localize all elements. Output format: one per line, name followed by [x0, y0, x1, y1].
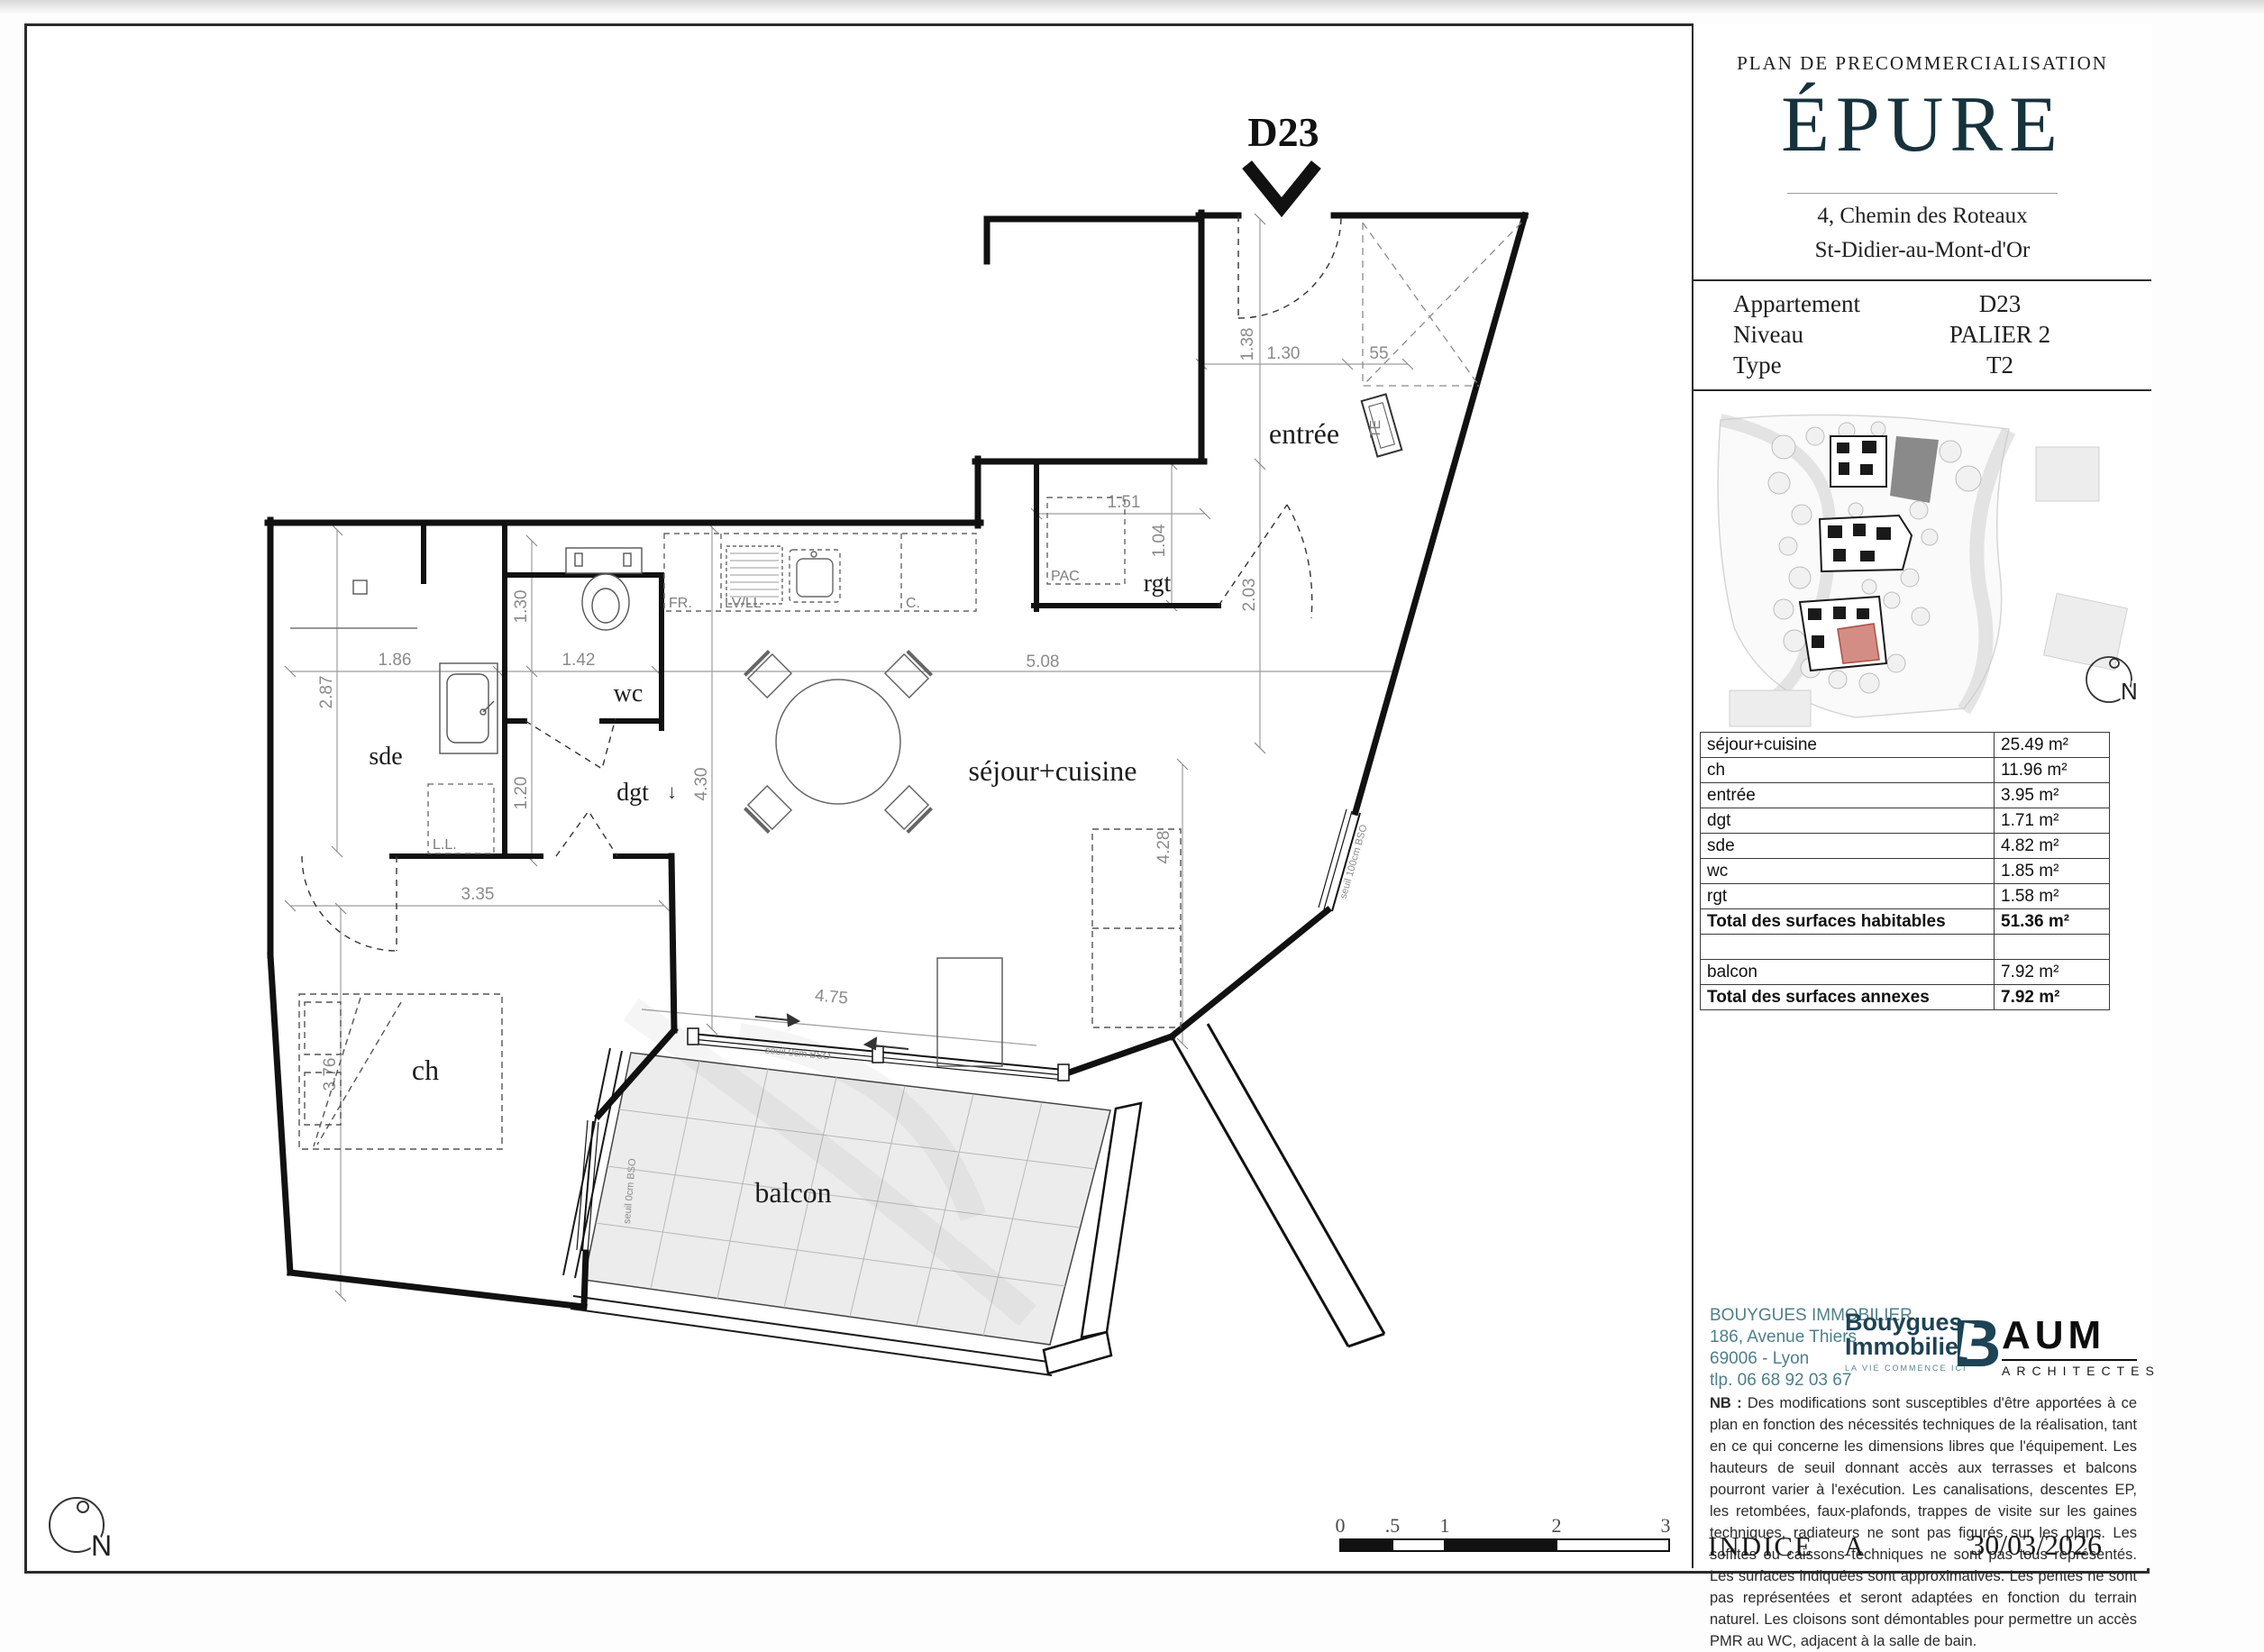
project-logo: ÉPURE [1693, 79, 2151, 170]
surface-value: 1.71 m² [1995, 808, 2110, 834]
address-line2: St-Didier-au-Mont-d'Or [1693, 238, 2151, 263]
exterior-wall-strip [1172, 1024, 1384, 1346]
dim-entree-width: 1.30 [1267, 344, 1301, 363]
aum-name: AUM [2002, 1316, 2137, 1355]
surface-value: 4.82 m² [1995, 834, 2110, 859]
surface-value: 1.85 m² [1995, 859, 2110, 884]
svg-text:0: 0 [1336, 1514, 1346, 1537]
site-plan: N [1693, 393, 2151, 728]
table-row: sde4.82 m² [1701, 834, 2110, 859]
dishwasher-label: LV/LL [725, 596, 762, 611]
indice: INDICEA [1708, 1530, 1866, 1563]
dim-rgt-width: 1.51 [1108, 493, 1141, 512]
doors [302, 215, 1341, 951]
dim-sejour-width: 5.08 [1027, 653, 1060, 671]
dim-sde-width: 1.86 [379, 651, 412, 670]
table-row-empty [1701, 935, 2110, 960]
surface-value [1995, 935, 2110, 960]
surface-value: 51.36 m² [1995, 909, 2110, 935]
fridge-label: FR. [669, 596, 692, 611]
info-label: Appartement [1733, 290, 1860, 318]
dgt-arrow: ↓ [667, 780, 677, 803]
info-value: D23 [1919, 290, 2081, 318]
table-row: ch11.96 m² [1701, 758, 2110, 783]
info-row-appartement: Appartement D23 [1693, 290, 2151, 321]
surface-label [1701, 935, 1995, 960]
address-line1: 4, Chemin des Roteaux [1693, 204, 2151, 229]
dim-sejour-depth: 4.30 [692, 768, 711, 801]
svg-text:.5: .5 [1385, 1514, 1401, 1537]
scale-bar [1340, 1539, 1669, 1551]
svg-text:1: 1 [1440, 1514, 1450, 1537]
indice-value: A [1844, 1530, 1866, 1562]
dim-entree-height: 1.38 [1238, 328, 1257, 361]
site-highlighted-unit [1838, 624, 1879, 663]
dim-entree-length: 2.03 [1240, 579, 1259, 612]
dim-wc-depth: 1.30 [512, 590, 531, 624]
bouygues-b-mark-icon: B [1953, 1310, 2005, 1375]
coffee-table [937, 958, 1002, 1066]
surfaces-table: séjour+cuisine25.49 m² ch11.96 m² entrée… [1700, 732, 2110, 1010]
wc-toilet [566, 548, 642, 630]
shower-drain [353, 580, 367, 594]
note-label: NB : [1710, 1395, 1742, 1411]
surface-label: sde [1701, 834, 1995, 859]
dim-terrace-top: 4.75 [814, 986, 849, 1008]
electrical-label: TE [1368, 420, 1383, 438]
table-row: séjour+cuisine25.49 m² [1701, 733, 2110, 758]
site-building-middle [1820, 516, 1912, 571]
room-entree: entrée [1269, 417, 1339, 450]
svg-text:2: 2 [1552, 1514, 1562, 1537]
table-row: rgt1.58 m² [1701, 884, 2110, 909]
divider [1693, 389, 2151, 391]
room-sde: sde [369, 743, 402, 771]
surface-label: ch [1701, 758, 1995, 783]
surface-label: dgt [1701, 808, 1995, 834]
table-row-total-annexes: Total des surfaces annexes7.92 m² [1701, 985, 2110, 1010]
room-ch: ch [412, 1054, 439, 1086]
surface-value: 11.96 m² [1995, 758, 2110, 783]
info-row-type: Type T2 [1693, 351, 2151, 382]
room-balcon: balcon [754, 1176, 831, 1209]
surface-value: 25.49 m² [1995, 733, 2110, 758]
surface-label: Total des surfaces annexes [1701, 985, 1995, 1010]
room-rgt: rgt [1144, 570, 1172, 598]
surface-label: wc [1701, 859, 1995, 884]
room-wc: wc [614, 680, 644, 707]
surface-label: séjour+cuisine [1701, 733, 1995, 758]
info-value: T2 [1919, 351, 2081, 379]
site-building-top [1830, 436, 1886, 487]
surface-value: 7.92 m² [1995, 985, 2110, 1010]
info-row-niveau: Niveau PALIER 2 [1693, 321, 2151, 351]
contact-line: tlp. 06 68 92 03 67 [1710, 1370, 1913, 1392]
surface-value: 3.95 m² [1995, 783, 2110, 808]
kitchen-counter [664, 534, 976, 611]
info-panel: PLAN DE PRECOMMERCIALISATION ÉPURE 4, Ch… [1692, 23, 2151, 1568]
table-row: entrée3.95 m² [1701, 783, 2110, 808]
plan-date: 30/03/2026 [1970, 1529, 2102, 1562]
table-row: dgt1.71 m² [1701, 808, 2110, 834]
scale-labels: 0 .5 1 2 3 [1336, 1514, 1671, 1537]
dim-sejour-side: 4.28 [1155, 831, 1173, 864]
unit-label: D23 [1247, 109, 1319, 155]
surface-label: Total des surfaces habitables [1701, 909, 1995, 935]
surface-value: 7.92 m² [1995, 960, 2110, 985]
info-label: Niveau [1733, 321, 1803, 349]
info-label: Type [1733, 351, 1782, 379]
room-dgt: dgt [616, 779, 649, 807]
aum-logo: AUM ARCHITECTES [2002, 1316, 2137, 1378]
svg-text:B: B [1953, 1310, 2001, 1375]
dim-ch-width: 3.35 [461, 885, 495, 904]
note-text: Des modifications sont susceptibles d'êt… [1710, 1395, 2137, 1649]
dining-table [744, 651, 931, 832]
pac-label: PAC [1051, 569, 1080, 584]
balcony-side-wall-return [1044, 1332, 1111, 1374]
surface-label: rgt [1701, 884, 1995, 909]
table-row: balcon7.92 m² [1701, 960, 2110, 985]
north-label: N [91, 1529, 112, 1562]
dim-wc-width: 1.42 [562, 651, 596, 670]
dim-sde-depth: 2.87 [317, 676, 336, 709]
surface-label: balcon [1701, 960, 1995, 985]
dim-dgt-depth: 1.20 [512, 777, 531, 810]
indice-label: INDICE [1708, 1530, 1813, 1562]
cooker-label: C. [906, 596, 920, 611]
plan-type-title: PLAN DE PRECOMMERCIALISATION [1693, 52, 2151, 75]
entrance-arrow-icon [1251, 169, 1312, 207]
disclaimer-note: NB : Des modifications sont susceptibles… [1710, 1392, 2137, 1652]
room-sejour: séjour+cuisine [969, 754, 1137, 787]
surface-label: entrée [1701, 783, 1995, 808]
sde-basin [440, 663, 498, 753]
dim-shaft-width: 55 [1369, 344, 1388, 363]
aum-subtitle: ARCHITECTES [2002, 1359, 2137, 1378]
dim-rgt-depth: 1.04 [1150, 524, 1169, 557]
info-value: PALIER 2 [1919, 321, 2081, 349]
divider [1693, 279, 2151, 281]
brand-rule [1787, 193, 2058, 194]
svg-text:3: 3 [1661, 1514, 1671, 1537]
table-row-total-habitable: Total des surfaces habitables51.36 m² [1701, 909, 2110, 935]
balcony [563, 1009, 1141, 1375]
surface-value: 1.58 m² [1995, 884, 2110, 909]
table-row: wc1.85 m² [1701, 859, 2110, 884]
site-north-label: N [2121, 678, 2138, 705]
washer-label: L.L. [433, 837, 457, 853]
